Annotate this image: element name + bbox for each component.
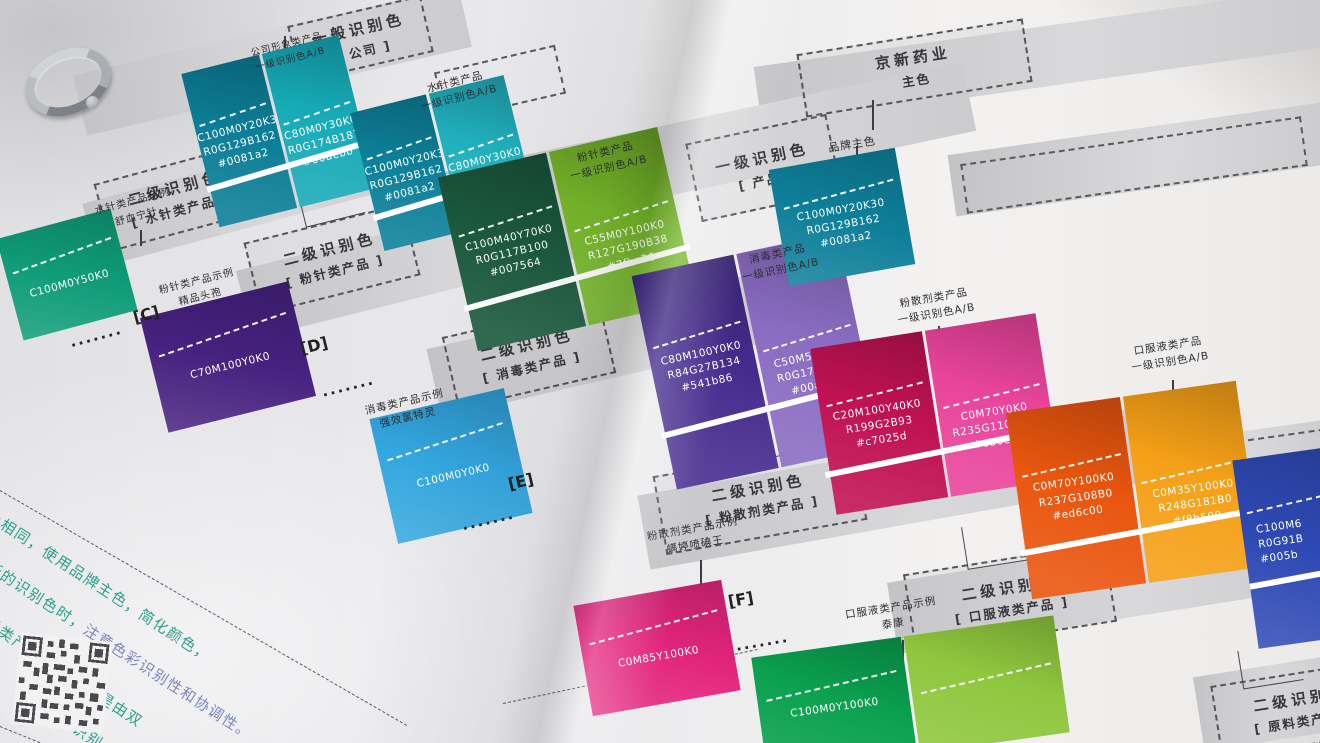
qr-code [11,631,112,734]
ribbon-brand-line1: 京新药业 [874,41,952,74]
swatch-raw-blue-partial: C100M6 R0G91B #005b [1232,445,1320,648]
binder-screw [86,96,99,109]
tag-d: [D] [298,333,330,358]
swatch-pair-raw-green: C100M0Y100K0 [751,615,1069,743]
ribbon-brand-line2: 主色 [900,68,932,91]
swatch-oral-a: C0M70Y100K0 R237G108B0 #ed6c00 [1006,397,1146,599]
swatch-raw-green-b [904,615,1070,743]
swatch-example-f: C0M85Y100K0 [573,580,740,716]
tag-f: [F] [727,588,755,611]
swatch-pair-oral: C0M70Y100K0 R237G108B0 #ed6c00 C0M35Y100… [1006,381,1262,599]
connector-line [140,230,142,246]
connector-line [872,100,874,130]
label-powder-ab: 粉散剂类产品 一级识别色A/B [894,283,977,329]
book-page-photo: 一般识别色 [ 公司 ] 京新药业 主色 一级识别色 [ 产品 ] 二级识别色 … [0,0,1320,743]
dots-c: ······· [69,323,126,354]
dots-d: ······· [321,374,378,405]
tag-e: [E] [506,469,535,493]
swatch-raw-green-a: C100M0Y100K0 [751,637,917,743]
label-oral-ab: 口服液类产品 一级识别色A/B [1128,332,1211,376]
